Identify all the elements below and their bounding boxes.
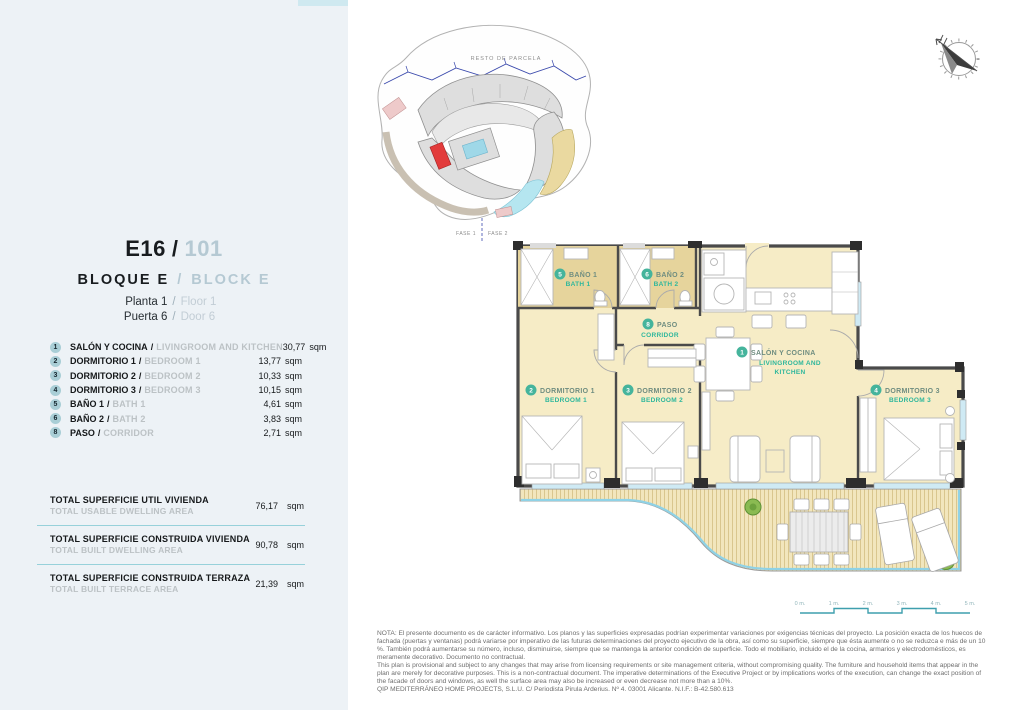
room-es: DORMITORIO 3 <box>70 385 136 395</box>
nota-es: NOTA: El presente documento es de caráct… <box>377 630 990 662</box>
room-number-badge: 8 <box>50 427 61 438</box>
room-es: DORMITORIO 1 <box>70 356 136 366</box>
room-number-badge: 2 <box>50 356 61 367</box>
company-line: QIP MEDITERRÁNEO HOME PROJECTS, S.L.U. C… <box>377 686 990 694</box>
area-value: 10,33 <box>258 371 281 381</box>
total-value: 76,17sqm <box>255 501 304 511</box>
room-row-salon: 1 SALÓN Y COCINA / LIVINGROOM AND KITCHE… <box>50 340 302 354</box>
area-unit: sqm <box>285 385 302 395</box>
room-es: DORMITORIO 2 <box>70 371 136 381</box>
room-row-bath2: 6 BAÑO 2 / BATH 2 3,83sqm <box>50 411 302 425</box>
room-en: BEDROOM 1 <box>144 356 200 366</box>
legal-disclaimer: NOTA: El presente documento es de caráct… <box>377 630 990 694</box>
value: 21,39 <box>255 579 278 589</box>
svg-text:0 m.: 0 m. <box>795 601 806 607</box>
room-row-dorm3: 4 DORMITORIO 3 / BEDROOM 3 10,15sqm <box>50 383 302 397</box>
svg-text:SALÓN Y COCINA: SALÓN Y COCINA <box>751 348 816 357</box>
svg-text:4 m.: 4 m. <box>931 601 942 607</box>
svg-text:8: 8 <box>646 322 650 329</box>
block-title: BLOQUE E/BLOCK E <box>0 272 348 288</box>
room-area: 2,71sqm <box>263 428 302 438</box>
svg-text:DORMITORIO 3: DORMITORIO 3 <box>885 388 940 395</box>
block-en: BLOCK E <box>191 272 270 288</box>
unit-number: 101 <box>185 236 223 261</box>
room-row-dorm1: 2 DORMITORIO 1 / BEDROOM 1 13,77sqm <box>50 354 302 368</box>
room-number-badge: 1 <box>50 342 61 353</box>
total-labels: TOTAL SUPERFICIE CONSTRUIDA TERRAZA TOTA… <box>50 573 250 595</box>
area-unit: sqm <box>285 428 302 438</box>
value: 90,78 <box>255 540 278 550</box>
svg-text:PASO: PASO <box>657 322 678 329</box>
total-en: TOTAL USABLE DWELLING AREA <box>50 506 209 517</box>
unit: sqm <box>287 501 304 511</box>
total-es: TOTAL SUPERFICIE CONSTRUIDA TERRAZA <box>50 573 250 584</box>
fase2-label: FASE 2 <box>488 231 508 237</box>
room-sep: / <box>107 399 110 409</box>
room-es: SALÓN Y COCINA <box>70 342 148 352</box>
total-built-terrace-area: TOTAL SUPERFICIE CONSTRUIDA TERRAZA TOTA… <box>50 565 304 603</box>
room-area: 10,33sqm <box>258 371 302 381</box>
nota-en: This plan is provisional and subject to … <box>377 662 990 686</box>
svg-text:5 m.: 5 m. <box>965 601 976 607</box>
plan-sheet: E16/101 BLOQUE E/BLOCK E Planta 1 / Floo… <box>0 0 1024 724</box>
svg-text:BEDROOM 3: BEDROOM 3 <box>889 397 931 404</box>
room-en: CORRIDOR <box>103 428 154 438</box>
svg-text:BEDROOM 1: BEDROOM 1 <box>545 397 587 404</box>
svg-text:3: 3 <box>626 388 630 395</box>
compass-rose <box>936 35 978 78</box>
room-area: 4,61sqm <box>263 399 302 409</box>
area-unit: sqm <box>309 342 326 352</box>
door-es: Puerta 6 <box>49 311 167 323</box>
room-area: 10,15sqm <box>258 385 302 395</box>
room-row-paso: 8 PASO / CORRIDOR 2,71sqm <box>50 426 302 440</box>
room-number-badge: 4 <box>50 385 61 396</box>
area-unit: sqm <box>285 399 302 409</box>
total-es: TOTAL SUPERFICIE CONSTRUIDA VIVIENDA <box>50 534 250 545</box>
area-value: 4,61 <box>263 399 281 409</box>
area-value: 10,15 <box>258 385 281 395</box>
svg-text:6: 6 <box>645 272 649 279</box>
room-en: BEDROOM 2 <box>144 371 200 381</box>
total-value: 21,39sqm <box>255 579 304 589</box>
floor-line: Planta 1 / Floor 1 <box>0 296 348 308</box>
svg-text:BAÑO 1: BAÑO 1 <box>569 270 597 279</box>
total-built-dwelling-area: TOTAL SUPERFICIE CONSTRUIDA VIVIENDA TOT… <box>50 526 304 564</box>
svg-text:2 m.: 2 m. <box>863 601 874 607</box>
svg-text:3 m.: 3 m. <box>897 601 908 607</box>
fase1-label: FASE 1 <box>456 231 476 237</box>
area-unit: sqm <box>285 356 302 366</box>
total-en: TOTAL BUILT TERRACE AREA <box>50 584 250 595</box>
svg-text:DORMITORIO 1: DORMITORIO 1 <box>540 388 595 395</box>
unit: sqm <box>287 579 304 589</box>
svg-text:BATH 2: BATH 2 <box>654 281 679 288</box>
room-en: BATH 1 <box>113 399 146 409</box>
room-sep: / <box>151 342 154 352</box>
title-separator: / <box>172 236 179 261</box>
room-number-badge: 3 <box>50 370 61 381</box>
total-usable-area: TOTAL SUPERFICIE UTIL VIVIENDA TOTAL USA… <box>50 487 304 525</box>
room-en: BEDROOM 3 <box>144 385 200 395</box>
accent-strip <box>298 0 348 6</box>
unit: sqm <box>287 540 304 550</box>
total-en: TOTAL BUILT DWELLING AREA <box>50 545 250 556</box>
area-value: 2,71 <box>263 428 281 438</box>
apartment-floor-plan: 5 BAÑO 1 BATH 1 6 BAÑO 2 BATH 2 8 PASO C… <box>505 238 990 633</box>
scale-bar: 0 m. 1 m. 2 m. 3 m. 4 m. 5 m. <box>795 601 976 613</box>
room-en: LIVINGROOM AND KITCHEN <box>156 342 283 352</box>
room-area: 13,77sqm <box>258 356 302 366</box>
svg-text:DORMITORIO 2: DORMITORIO 2 <box>637 388 692 395</box>
svg-text:LIVINGROOM AND: LIVINGROOM AND <box>759 360 821 367</box>
room-area: 3,83sqm <box>263 414 302 424</box>
svg-text:CORRIDOR: CORRIDOR <box>641 332 679 339</box>
totals-section: TOTAL SUPERFICIE UTIL VIVIENDA TOTAL USA… <box>50 487 304 603</box>
room-area-list: 1 SALÓN Y COCINA / LIVINGROOM AND KITCHE… <box>50 340 302 440</box>
svg-text:BEDROOM 2: BEDROOM 2 <box>641 397 683 404</box>
room-sep: / <box>98 428 101 438</box>
area-unit: sqm <box>285 371 302 381</box>
area-value: 3,83 <box>263 414 281 424</box>
value: 76,17 <box>255 501 278 511</box>
area-value: 13,77 <box>258 356 281 366</box>
room-sep: / <box>139 371 142 381</box>
room-row-dorm2: 3 DORMITORIO 2 / BEDROOM 2 10,33sqm <box>50 369 302 383</box>
total-labels: TOTAL SUPERFICIE CONSTRUIDA VIVIENDA TOT… <box>50 534 250 556</box>
total-value: 90,78sqm <box>255 540 304 550</box>
room-sep: / <box>107 414 110 424</box>
resto-de-parcela-label: RESTO DE PARCELA <box>471 56 542 62</box>
total-es: TOTAL SUPERFICIE UTIL VIVIENDA <box>50 495 209 506</box>
unit-code: E16 <box>125 236 166 261</box>
room-row-bath1: 5 BAÑO 1 / BATH 1 4,61sqm <box>50 397 302 411</box>
floor-en: Floor 1 <box>181 296 299 308</box>
north-compass-icon <box>930 30 986 86</box>
svg-text:5: 5 <box>558 272 562 279</box>
svg-text:4: 4 <box>874 388 878 395</box>
room-es: BAÑO 1 <box>70 399 104 409</box>
room-en: BATH 2 <box>113 414 146 424</box>
block-separator: / <box>177 272 183 288</box>
room-number-badge: 6 <box>50 413 61 424</box>
door-separator: / <box>172 311 175 323</box>
label-paso: 8 PASO CORRIDOR <box>641 319 679 340</box>
room-sep: / <box>139 356 142 366</box>
svg-text:KITCHEN: KITCHEN <box>775 369 806 376</box>
door-line: Puerta 6 / Door 6 <box>0 311 348 323</box>
unit-title: E16/101 <box>0 236 348 262</box>
svg-text:BATH 1: BATH 1 <box>566 281 591 288</box>
unit-info-panel: E16/101 BLOQUE E/BLOCK E Planta 1 / Floo… <box>0 0 348 710</box>
room-number-badge: 5 <box>50 399 61 410</box>
svg-text:BAÑO 2: BAÑO 2 <box>656 270 684 279</box>
room-es: BAÑO 2 <box>70 414 104 424</box>
floor-es: Planta 1 <box>49 296 167 308</box>
room-es: PASO <box>70 428 95 438</box>
site-location-map: RESTO DE PARCELA FASE 1 FASE 2 <box>348 14 610 242</box>
area-unit: sqm <box>285 414 302 424</box>
svg-text:1: 1 <box>740 350 744 357</box>
area-value: 30,77 <box>283 342 306 352</box>
svg-text:1 m.: 1 m. <box>829 601 840 607</box>
room-sep: / <box>139 385 142 395</box>
svg-text:2: 2 <box>529 388 533 395</box>
total-labels: TOTAL SUPERFICIE UTIL VIVIENDA TOTAL USA… <box>50 495 209 517</box>
block-es: BLOQUE E <box>77 272 169 288</box>
room-area: 30,77sqm <box>283 342 327 352</box>
floor-separator: / <box>172 296 175 308</box>
door-en: Door 6 <box>181 311 299 323</box>
